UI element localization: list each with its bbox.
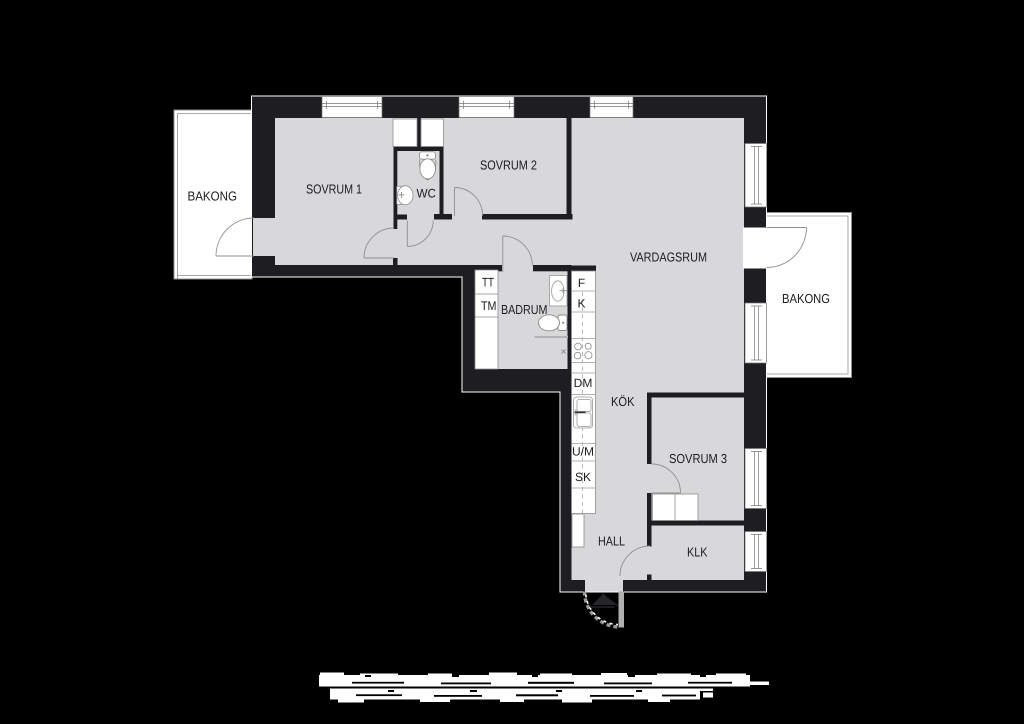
svg-text:BADRUM: BADRUM <box>501 302 548 317</box>
svg-text:HALL: HALL <box>598 533 625 548</box>
svg-text:U/M: U/M <box>572 445 594 459</box>
svg-text:DM: DM <box>574 376 593 390</box>
svg-text:KLK: KLK <box>687 545 708 560</box>
svg-text:KÖK: KÖK <box>611 394 635 409</box>
svg-text:TT: TT <box>482 275 494 289</box>
svg-text:BAKONG: BAKONG <box>188 189 238 204</box>
svg-text:K: K <box>577 297 585 311</box>
svg-text:BAKONG: BAKONG <box>782 291 830 306</box>
svg-text:F: F <box>578 276 585 290</box>
svg-text:TM: TM <box>481 299 497 313</box>
svg-text:SOVRUM 1: SOVRUM 1 <box>306 182 362 197</box>
svg-text:SOVRUM 2: SOVRUM 2 <box>480 158 537 173</box>
svg-text:VARDAGSRUM: VARDAGSRUM <box>630 250 707 265</box>
svg-text:SOVRUM 3: SOVRUM 3 <box>669 451 727 466</box>
svg-text:WC: WC <box>417 186 437 200</box>
svg-text:SK: SK <box>575 470 591 484</box>
